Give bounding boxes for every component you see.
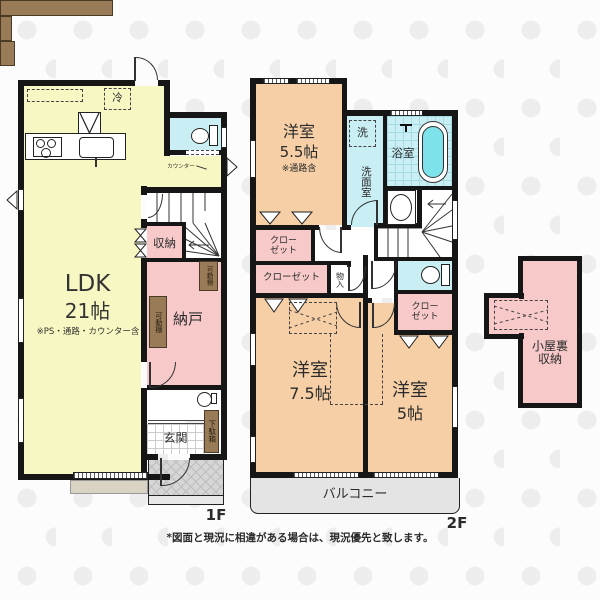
disclaimer-text: *図面と現況に相違がある場合は、現況優先と致します。 <box>90 531 510 547</box>
attic-ladder-lines <box>494 300 548 330</box>
attic-room <box>518 256 582 408</box>
attic-storage: 小屋裏収納 <box>0 0 600 600</box>
attic-label: 小屋裏収納 <box>524 336 576 370</box>
floor-plan-page: 冷 カウンター 可動棚 可動棚 下駄箱 <box>0 0 600 600</box>
